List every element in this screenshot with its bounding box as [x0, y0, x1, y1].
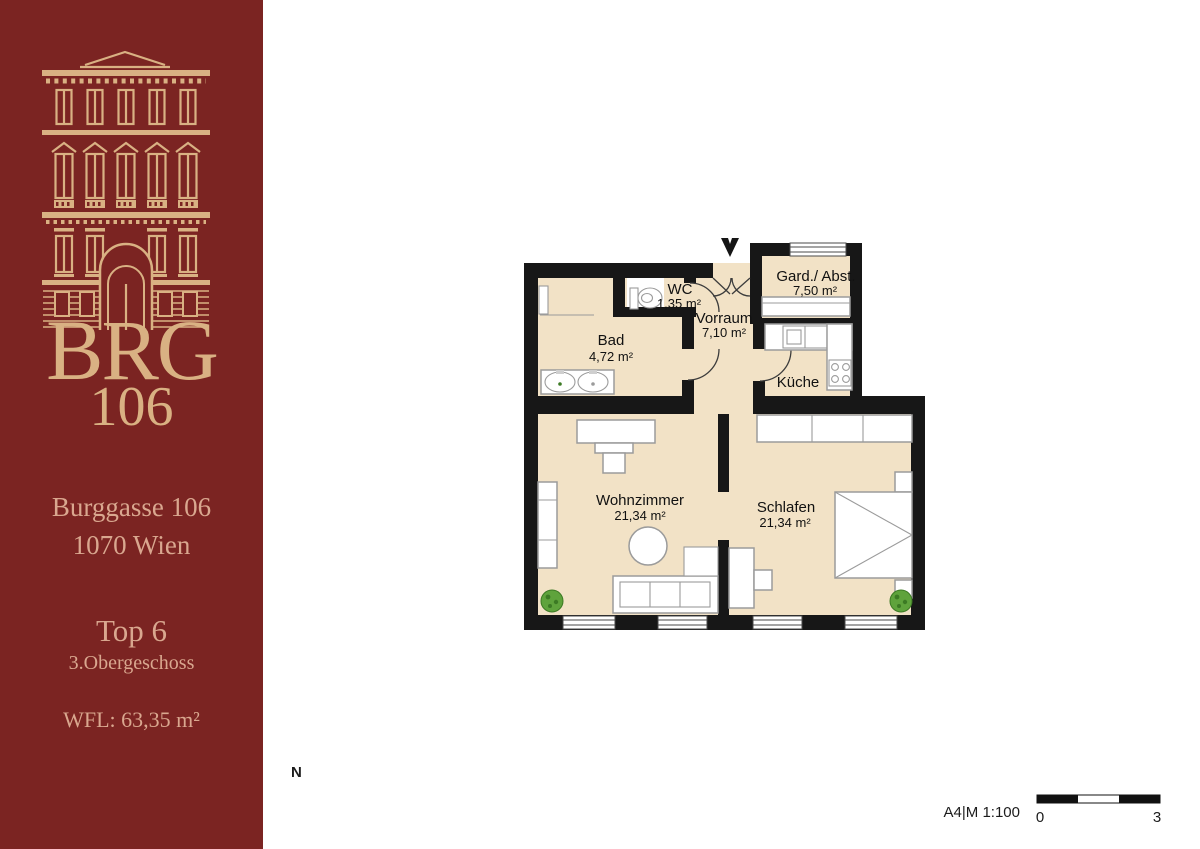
bad-radiator: [539, 286, 548, 314]
room-area-schlafen: 21,34 m²: [759, 515, 811, 530]
nightstand-top: [895, 472, 912, 492]
window-wohnzimmer-2: [658, 616, 707, 629]
scale-text: A4|M 1:100: [944, 804, 1020, 821]
room-label-wohnzimmer: Wohnzimmer: [596, 492, 684, 509]
window-gard: [790, 243, 846, 256]
scale-start-label: 0: [1036, 809, 1044, 826]
page: BRG 106 Burggasse 106 1070 Wien Top 6 3.…: [0, 0, 1200, 849]
scale-end-label: 3: [1153, 809, 1161, 826]
room-area-wohnzimmer: 21,34 m²: [614, 508, 666, 523]
window-schlafen-1: [753, 616, 802, 629]
round-table: [629, 527, 667, 565]
schlafen-wardrobe: [757, 415, 912, 442]
gard-wardrobe: [762, 297, 850, 316]
room-label-kueche: Küche: [777, 374, 820, 391]
plant-icon: [890, 590, 912, 612]
entrance-arrow-icon: [721, 238, 739, 257]
room-label-bad: Bad: [598, 332, 625, 349]
room-label-schlafen: Schlafen: [757, 499, 815, 516]
north-label: N: [291, 764, 302, 781]
room-area-gard: 7,50 m²: [793, 283, 838, 298]
wohnzimmer-shelf: [538, 482, 557, 568]
room-area-vorraum: 7,10 m²: [702, 325, 747, 340]
bed: [835, 492, 912, 578]
window-schlafen-2: [845, 616, 897, 629]
bad-double-sink: [541, 370, 614, 394]
room-area-wc: 1,35 m²: [657, 296, 702, 311]
floor-plan: WC 1,35 m² Gard./ Abst. 7,50 m² Vorraum …: [0, 0, 1200, 849]
room-area-bad: 4,72 m²: [589, 349, 634, 364]
stove: [829, 360, 851, 386]
plant-icon: [541, 590, 563, 612]
north-indicator: N: [291, 764, 302, 843]
window-wohnzimmer-1: [563, 616, 615, 629]
scale-bar: A4|M 1:100 0 3: [944, 795, 1162, 826]
